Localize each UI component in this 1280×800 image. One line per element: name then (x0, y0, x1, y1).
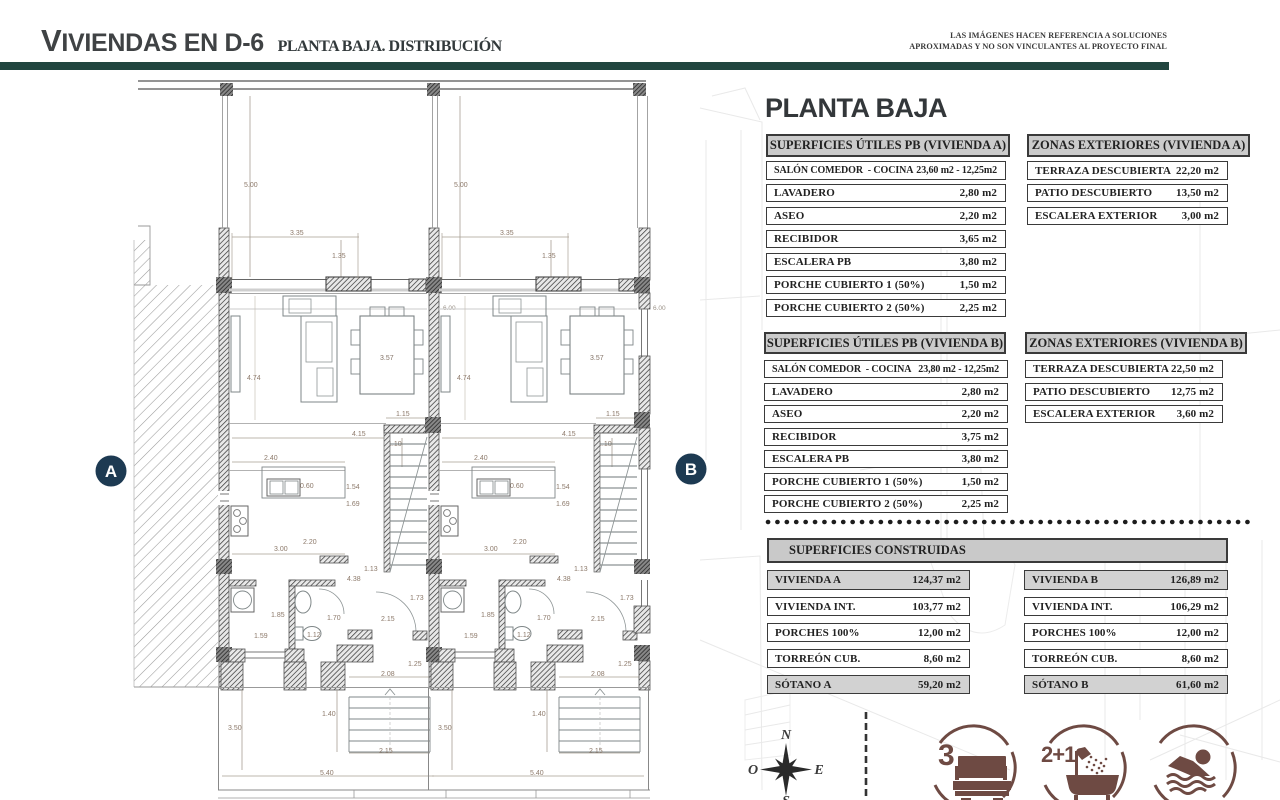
svg-text:2+1: 2+1 (1041, 742, 1076, 767)
svg-text:S: S (782, 794, 790, 800)
svg-text:A: A (105, 462, 117, 481)
svg-text:B: B (685, 460, 697, 479)
svg-text:N: N (780, 728, 792, 743)
svg-text:O: O (748, 763, 758, 778)
svg-text:E: E (813, 763, 823, 778)
svg-text:3: 3 (938, 739, 955, 772)
